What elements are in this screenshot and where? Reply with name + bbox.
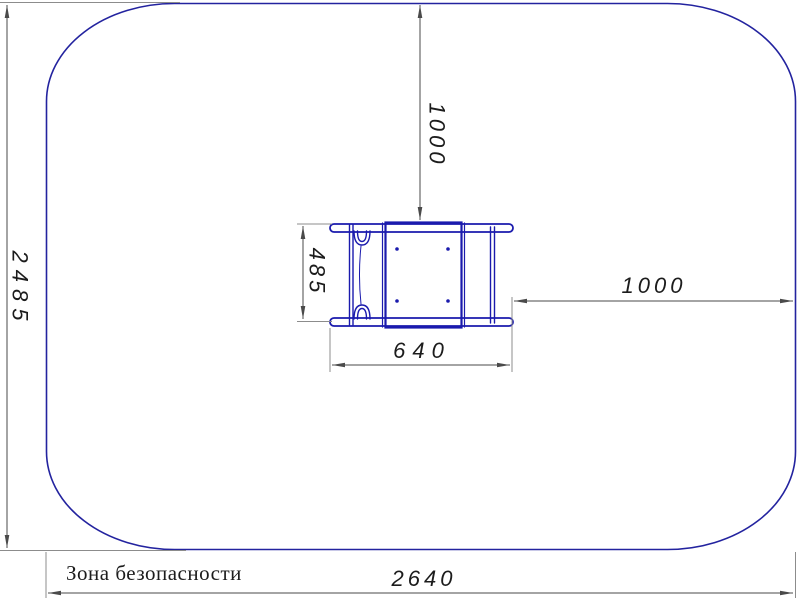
dimension-value-top-clearance: 1000 xyxy=(425,103,450,168)
equipment-seat-panel xyxy=(383,223,465,328)
dimension-lines xyxy=(7,5,793,593)
dimension-value-zone-height: 2485 xyxy=(8,250,33,328)
equipment-right-rail xyxy=(491,227,495,323)
equipment-top-view xyxy=(330,223,513,328)
dimension-value-zone-width: 2640 xyxy=(391,566,457,591)
technical-drawing-page: 2485 1000 485 640 1000 2640 Зона безопас… xyxy=(0,0,800,600)
dimension-value-equipment-width: 640 xyxy=(393,338,451,363)
equipment-left-rail xyxy=(350,225,354,325)
equipment-bottom-handle xyxy=(354,305,370,319)
dimension-value-equipment-depth: 485 xyxy=(305,248,330,297)
equipment-bolt-holes xyxy=(395,247,450,303)
equipment-side-edge xyxy=(360,246,362,304)
safety-zone-drawing: 2485 1000 485 640 1000 2640 Зона безопас… xyxy=(0,0,800,600)
dimension-value-right-clearance: 1000 xyxy=(622,273,687,298)
dimension-values: 2485 1000 485 640 1000 2640 xyxy=(8,103,687,591)
equipment-top-handle xyxy=(354,231,370,245)
safety-zone-caption: Зона безопасности xyxy=(66,561,242,585)
